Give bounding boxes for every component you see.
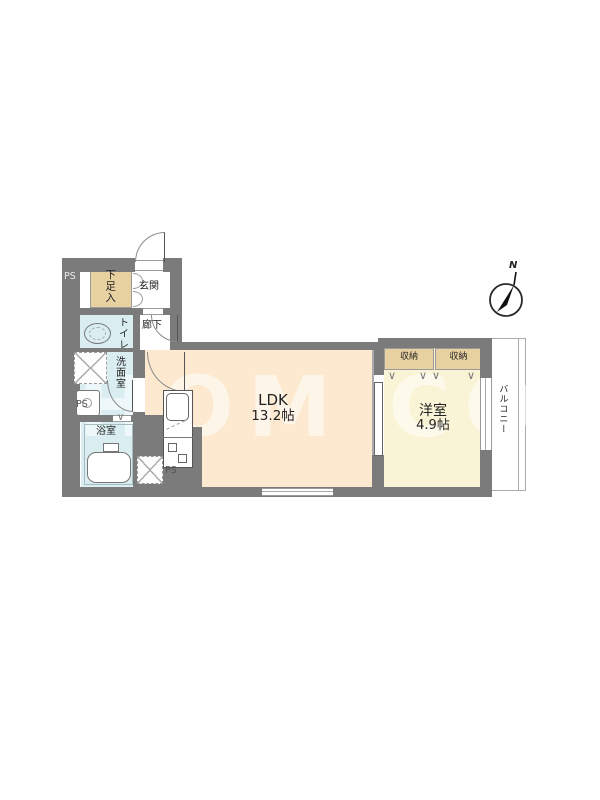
ps-label-top: PS — [64, 272, 76, 283]
closet-1-label: 収納 — [384, 352, 434, 362]
wall — [378, 338, 490, 348]
compass-icon — [485, 258, 531, 320]
wall — [163, 308, 170, 315]
entrance-label: 玄関 — [139, 281, 159, 293]
bathtub-icon — [87, 452, 131, 483]
wall — [170, 342, 372, 350]
toilet-seat-icon — [89, 327, 106, 340]
kitchen-divider-line — [163, 437, 193, 438]
kitchen-sink-icon — [166, 393, 189, 421]
western-room-label: 洋室 4.9帖 — [395, 403, 471, 434]
bath-counter-icon — [103, 443, 119, 452]
hanger-icon: ∨ — [419, 370, 427, 381]
compass: N — [485, 258, 531, 320]
ldk-label: LDK 13.2帖 — [227, 392, 319, 425]
hanger-icon: ∨ — [467, 370, 475, 381]
ldk-window — [262, 488, 333, 496]
compass-north-label: N — [509, 260, 517, 272]
wall — [133, 315, 140, 350]
bathroom-label: 浴室 — [96, 426, 116, 438]
sliding-door-panel — [374, 382, 383, 456]
hallway-label: 廊下 — [142, 320, 162, 332]
wall — [80, 308, 143, 315]
balcony-label: バルコニー — [497, 384, 507, 440]
ps-label-mid: PS — [76, 400, 88, 411]
balcony-rail-line — [518, 339, 519, 490]
wall — [62, 258, 135, 272]
entrance-door-swing — [135, 232, 165, 262]
pipe-space-box — [137, 456, 163, 484]
ldk-window-line — [262, 491, 333, 492]
shoe-cabinet-label: 下足入 — [104, 269, 116, 307]
washroom-label: 洗面室 — [113, 356, 125, 414]
wall — [192, 427, 202, 472]
wall — [480, 450, 492, 497]
hall-doorway — [143, 308, 163, 315]
wall — [372, 455, 384, 497]
closet-2-label: 収納 — [435, 352, 482, 362]
western-room-window — [480, 378, 492, 450]
ps-label-bottom: PS — [165, 466, 177, 477]
stove-burner-icon — [168, 443, 177, 452]
wall — [133, 350, 145, 378]
ldk-name: LDK — [227, 392, 319, 409]
western-window-line — [485, 378, 486, 450]
ldk-size: 13.2帖 — [227, 409, 319, 425]
western-room-size: 4.9帖 — [395, 419, 471, 434]
hanger-icon: ∨ — [388, 370, 396, 381]
bath-door-icon: ∨ — [117, 413, 124, 423]
toilet-label: トイレ — [116, 317, 128, 349]
hanger-icon: ∨ — [432, 370, 440, 381]
stove-burner-icon — [178, 454, 187, 463]
western-room-name: 洋室 — [395, 403, 471, 419]
floor-plan: HOM CORK ∨ ∨ ∨ — [0, 0, 600, 800]
washer-space-icon — [74, 352, 107, 384]
